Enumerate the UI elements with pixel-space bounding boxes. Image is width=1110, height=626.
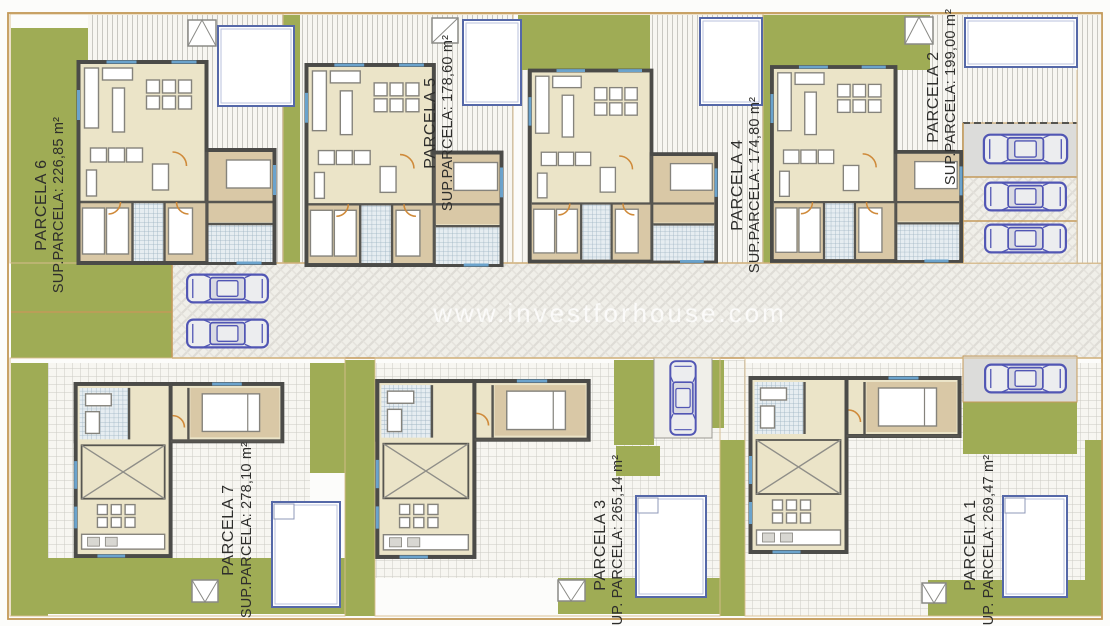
parcela1-name: PARCELA 1: [962, 499, 979, 590]
parcela6-area: SUP.PARCELA: 226,85 m²: [51, 117, 67, 293]
parcela3-area: SUP. PARCELA: 265,14 m²: [610, 455, 626, 626]
parcela2-area: SUP.PARCELA: 199,00 m²: [943, 9, 959, 185]
parcela4-area: SUP.PARCELA: 174,80 m²: [747, 97, 763, 273]
parcela7-name: PARCELA 7: [220, 484, 237, 575]
site-plan: PARCELA 6 SUP.PARCELA: 226,85 m² PARCELA…: [0, 0, 1110, 626]
car-parcela3: [670, 361, 695, 435]
pool-parcela5: [463, 20, 521, 105]
car-parking-2: [985, 183, 1066, 211]
pool-parcela2: [965, 18, 1077, 67]
watermark-text: www.investforhouse.com: [432, 298, 787, 328]
parcela4-name: PARCELA 4: [729, 139, 746, 230]
pool-parcela6: [218, 26, 294, 106]
parcela6-name: PARCELA 6: [33, 159, 50, 250]
parcela7-area: SUP.PARCELA: 278,10 m²: [239, 442, 255, 618]
site-plan-drawing: PARCELA 6 SUP.PARCELA: 226,85 m² PARCELA…: [0, 0, 1110, 626]
parcela1-area: SUP. PARCELA: 269,47 m²: [981, 455, 997, 626]
pool-parcela7: [272, 502, 340, 607]
car-parking-3: [985, 225, 1066, 253]
pool-parcela3: [636, 496, 706, 597]
car-street-2: [187, 320, 268, 348]
parcela5-name: PARCELA 5: [422, 77, 439, 168]
pool-parcela1: [1003, 496, 1067, 597]
car-street-1: [187, 275, 268, 303]
parcela2-name: PARCELA 2: [925, 51, 942, 142]
parcela5-area: SUP.PARCELA: 178,60 m²: [440, 35, 456, 211]
parcela3-name: PARCELA 3: [592, 499, 609, 590]
car-parcela1: [985, 365, 1066, 393]
car-parking-1: [984, 135, 1067, 164]
pool-parcela4: [700, 18, 762, 105]
